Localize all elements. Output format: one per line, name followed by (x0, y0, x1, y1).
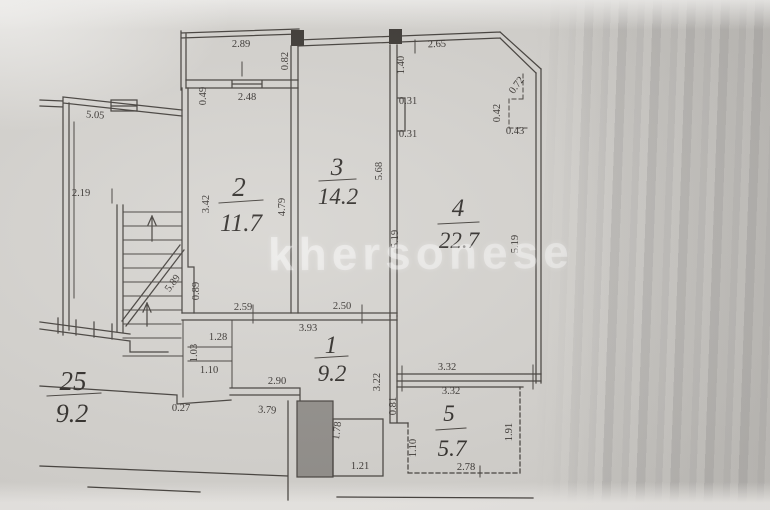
dim-hall-bottom-a: 2.90 (268, 376, 286, 387)
outer-top-wall (291, 29, 541, 73)
column-post (389, 29, 402, 44)
left-apartment (40, 97, 182, 352)
dim-room23-wall: 4.79 (277, 198, 288, 216)
stair-separation-wall (117, 205, 123, 332)
room1-area: 9.2 (318, 361, 347, 386)
dim-room5-top: 3.32 (442, 386, 460, 397)
dim-room3-bottom: 2.50 (333, 301, 351, 312)
room5-area: 5.7 (438, 436, 468, 461)
dim-closet-c: 1.10 (200, 365, 218, 376)
dim-step-h: 0.43 (506, 126, 524, 137)
dim-pilaster-b: 0.31 (399, 129, 417, 140)
dim-balcony-depth: 0.82 (280, 52, 291, 70)
dim-left-apt-width: 2.19 (72, 188, 90, 199)
dim-wall-seg: 0.49 (198, 87, 209, 105)
dim-room4-top: 2.65 (428, 39, 447, 51)
dim-hall-bottom-b: 3.79 (258, 405, 277, 417)
room5-label: 5 5.7 (438, 401, 468, 461)
watermark: khersonese (268, 225, 574, 282)
dim-balcony-width: 2.89 (232, 39, 250, 50)
dim-shaft-h: 1.78 (331, 421, 344, 441)
room1-number: 1 (325, 332, 338, 359)
dim-shaft-w: 1.21 (351, 461, 369, 472)
balcony-window-wall (186, 80, 298, 88)
room2-number: 2 (232, 172, 246, 202)
hall-top-wall (182, 313, 397, 320)
dim-room2-bottom: 2.59 (234, 302, 252, 313)
top-wall-lines (298, 32, 541, 73)
dim-room3-top-seg: 1.40 (396, 56, 407, 74)
dim-room5-right: 1.91 (504, 423, 515, 441)
room3-label: 3 14.2 (318, 154, 358, 209)
room3-number: 3 (330, 154, 344, 181)
dim-room5-bottom: 2.78 (457, 462, 475, 473)
dim-room2-height: 3.42 (201, 195, 212, 213)
dim-hall-top: 3.93 (299, 323, 317, 334)
dim-closet-b: 1.03 (189, 344, 200, 362)
dim-room5-left: 1.10 (408, 439, 419, 457)
room5-number: 5 (443, 401, 455, 426)
dim-step-v: 0.42 (492, 104, 503, 122)
left-outer-wall (40, 97, 182, 335)
dim-pilaster-a: 0.31 (399, 96, 417, 107)
room2-left-wall (182, 88, 194, 313)
adjacent-room-label: 25 9.2 (56, 366, 89, 428)
dim-left-apt-top: 5.05 (86, 109, 105, 121)
adjacent-room-area: 9.2 (56, 399, 89, 428)
dim-room2-left-seg: 0.89 (191, 282, 202, 300)
fraction-bars (47, 179, 479, 430)
room3-area: 14.2 (318, 184, 358, 209)
dim-room3-height: 5.68 (374, 162, 385, 180)
room2-label: 2 11.7 (220, 172, 263, 237)
vent-shaft (297, 401, 333, 477)
column-post (291, 30, 304, 46)
dim-hall-right: 3.22 (372, 373, 383, 391)
adjacent-room-number: 25 (60, 366, 87, 396)
dim-chamfer: 0.72 (507, 75, 527, 96)
dim-closet-a: 1.28 (209, 332, 227, 343)
room4-number: 4 (452, 195, 465, 222)
dim-room4-bottom: 3.32 (438, 362, 456, 373)
room1-label: 1 9.2 (318, 332, 347, 386)
room2-area: 11.7 (220, 210, 263, 237)
dim-room5-left-seg: 0.81 (388, 397, 399, 415)
dim-stairs-run: 5.89 (163, 273, 183, 294)
floorplan-photo: 2.89 2.48 5.05 2.19 2.65 0.31 0.31 0.43 … (0, 0, 770, 510)
dim-room2-top-width: 2.48 (238, 92, 256, 103)
room4-bottom-wall (397, 374, 541, 387)
bottom-window-wall (40, 318, 168, 352)
dim-hall-step: 0.27 (172, 403, 190, 414)
